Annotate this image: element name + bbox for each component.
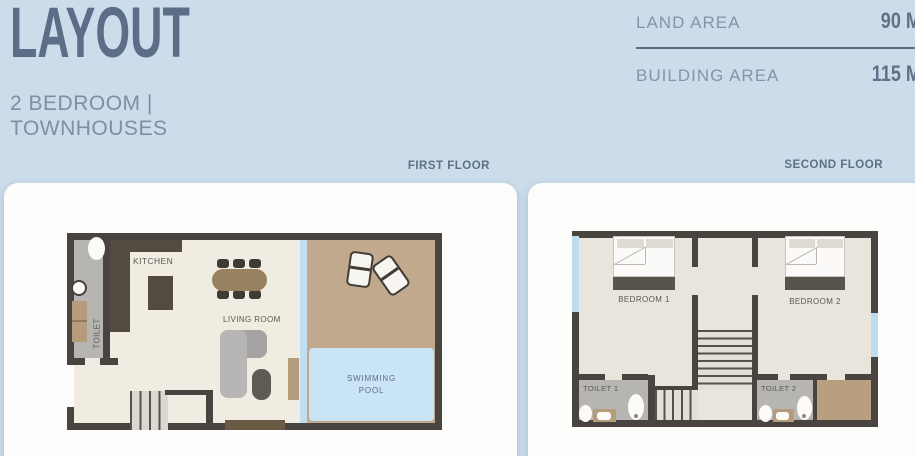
page-title-text: LAYOUT — [10, 0, 190, 67]
dining-chair-icon — [217, 259, 229, 268]
wall-segment — [648, 375, 655, 425]
wall-segment — [67, 358, 85, 365]
blanket-fold — [614, 264, 645, 265]
glass-sliding-door — [300, 240, 307, 423]
drain-dot — [634, 414, 638, 418]
wall-segment — [100, 358, 118, 365]
wall-segment — [692, 238, 698, 267]
lounge-chair-divider — [381, 267, 399, 281]
bedroom1-label: BEDROOM 1 — [613, 295, 675, 304]
dining-chair-icon — [249, 259, 261, 268]
door-opening — [67, 365, 74, 407]
subtitle-line1: 2 BEDROOM | — [10, 92, 167, 117]
dining-chair-icon — [249, 290, 261, 299]
wall-segment — [752, 238, 758, 267]
wall-segment — [845, 374, 871, 380]
page-subtitle: 2 BEDROOM | TOWNHOUSES — [10, 92, 167, 142]
building-area-label: BUILDING AREA — [636, 66, 779, 86]
blanket-fold — [786, 264, 816, 265]
sofa-chaise-icon — [220, 330, 247, 398]
window-strip — [572, 236, 579, 312]
building-area-row: BUILDING AREA 115 M — [636, 49, 915, 87]
vanity-icon — [773, 409, 794, 422]
wall-segment — [103, 240, 110, 365]
bed-bench — [613, 277, 675, 290]
pillow-icon — [617, 239, 644, 248]
vanity-icon — [593, 409, 616, 422]
wall-segment — [577, 374, 605, 380]
staircase-treads — [130, 391, 168, 430]
staircase-lower-flight — [655, 390, 698, 420]
pool-label-line2: POOL — [359, 385, 384, 397]
sink-icon — [71, 280, 87, 296]
pillow-icon — [789, 239, 815, 248]
drain-dot — [802, 414, 806, 418]
window-strip — [871, 313, 878, 357]
first-floor-heading: FIRST FLOOR — [408, 160, 490, 172]
wall-segment — [622, 374, 648, 380]
ottoman-icon — [252, 369, 271, 400]
toilet2-label: TOILET 2 — [761, 384, 796, 393]
second-floor-card: TOILET 1 TOILET 2 — [528, 183, 915, 456]
kitchen-label: KITCHEN — [133, 256, 173, 266]
kitchen-island — [148, 276, 173, 310]
layout-page: LAYOUT 2 BEDROOM | TOWNHOUSES LAND AREA … — [0, 0, 915, 456]
second-floor-heading: SECOND FLOOR — [784, 159, 883, 171]
pool-label-line1: SWIMMING — [347, 373, 396, 385]
lounge-chair-icon — [346, 251, 375, 289]
blanket-fold — [816, 247, 817, 264]
bed-icon — [613, 236, 675, 277]
toilet1-label: TOILET 1 — [583, 384, 618, 393]
land-area-value: 90 M — [881, 8, 915, 34]
blanket-fold — [645, 247, 646, 264]
page-title: LAYOUT — [10, 0, 295, 70]
building-area-value: 115 M — [872, 61, 915, 87]
bed-bench — [785, 277, 845, 290]
staircase-upper-flight — [698, 330, 752, 390]
shower-icon — [628, 394, 644, 420]
entry-mat — [225, 420, 285, 430]
toilet-bowl-icon — [759, 405, 772, 422]
swimming-pool: SWIMMING POOL — [309, 348, 434, 421]
area-summary: LAND AREA 90 M BUILDING AREA 115 M — [636, 8, 915, 87]
subtitle-line2: TOWNHOUSES — [10, 117, 167, 142]
dining-table-icon — [212, 269, 267, 291]
blanket-fold — [614, 247, 646, 265]
sink-basin — [597, 412, 611, 420]
shower-icon — [797, 396, 812, 420]
bedroom2-label: BEDROOM 2 — [785, 297, 845, 306]
wall-segment — [206, 390, 213, 430]
bathtub-icon — [88, 237, 105, 260]
land-area-label: LAND AREA — [636, 13, 740, 33]
cabinet-divider — [72, 320, 87, 322]
bathroom-cabinet — [72, 301, 87, 342]
toilet-room-label: TOILET — [93, 317, 102, 351]
land-area-row: LAND AREA 90 M — [636, 8, 915, 49]
second-floor-plan: TOILET 1 TOILET 2 — [572, 231, 878, 427]
first-floor-plan: SWIMMING POOL TOILET — [67, 233, 442, 430]
dining-chair-icon — [233, 259, 245, 268]
dining-chair-icon — [217, 290, 229, 299]
lounge-chair-divider — [350, 266, 370, 271]
tv-console-icon — [288, 358, 299, 400]
sink-basin — [776, 412, 789, 420]
wall-segment — [757, 374, 778, 380]
pillow-icon — [817, 239, 843, 248]
kitchen-counter — [110, 240, 130, 332]
bed-icon — [785, 236, 845, 277]
pillow-icon — [646, 239, 673, 248]
first-floor-card: SWIMMING POOL TOILET — [4, 183, 517, 456]
dining-chair-icon — [233, 290, 245, 299]
balcony-area — [817, 380, 871, 420]
toilet-bowl-icon — [579, 405, 592, 422]
living-room-label: LIVING ROOM — [223, 315, 281, 324]
blanket-fold — [786, 247, 817, 265]
